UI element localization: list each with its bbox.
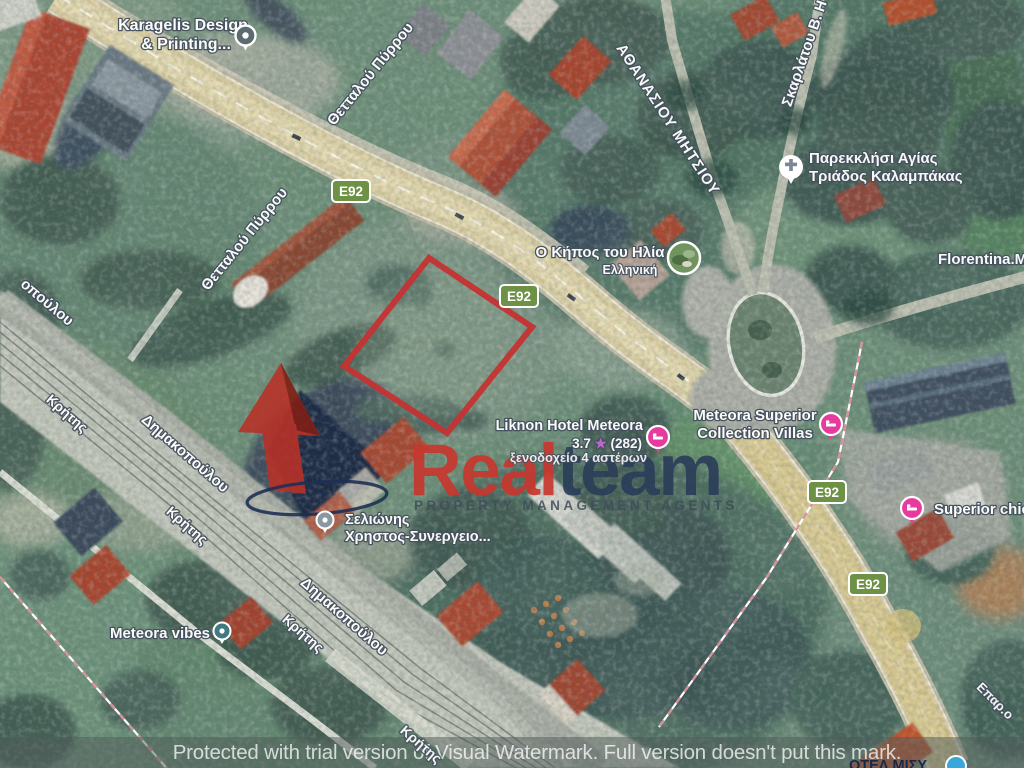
svg-text:Τριάδος Καλαμπάκας: Τριάδος Καλαμπάκας	[809, 168, 963, 185]
svg-text:E92: E92	[339, 184, 363, 199]
svg-text:Collection Villas: Collection Villas	[697, 425, 813, 442]
svg-text:Florentina.Me: Florentina.Me	[938, 251, 1024, 268]
svg-text:ΟΤΕΛ ΜΙΣΥ: ΟΤΕΛ ΜΙΣΥ	[849, 758, 927, 768]
svg-text:Ο Κήπος του Ηλία: Ο Κήπος του Ηλία	[536, 244, 666, 261]
svg-text:& Printing...: & Printing...	[141, 36, 231, 53]
svg-text:Meteora Superior: Meteora Superior	[693, 407, 817, 424]
svg-text:Karagelis Design: Karagelis Design	[118, 17, 248, 34]
svg-text:Ελληνική: Ελληνική	[603, 263, 658, 277]
svg-text:PROPERTY MANAGEMENT AGENTS: PROPERTY MANAGEMENT AGENTS	[414, 498, 738, 513]
svg-text:E92: E92	[856, 577, 880, 592]
svg-text:Χρηστος-Συνεργειο...: Χρηστος-Συνεργειο...	[345, 529, 491, 545]
svg-text:3.7 ★ (282): 3.7 ★ (282)	[572, 436, 642, 451]
svg-text:ξενοδοχείο 4 αστέρων: ξενοδοχείο 4 αστέρων	[510, 450, 647, 465]
svg-text:Superior chic: Superior chic	[934, 501, 1024, 518]
svg-text:Σελιώνης: Σελιώνης	[345, 512, 409, 528]
svg-text:Liknon Hotel Meteora: Liknon Hotel Meteora	[496, 418, 644, 434]
svg-text:Meteora vibes: Meteora vibes	[110, 625, 210, 642]
svg-text:E92: E92	[507, 289, 531, 304]
svg-text:E92: E92	[815, 485, 839, 500]
svg-text:Protected with trial version o: Protected with trial version of Visual W…	[173, 741, 902, 764]
svg-text:Παρεκκλήσι Αγίας: Παρεκκλήσι Αγίας	[809, 150, 938, 167]
